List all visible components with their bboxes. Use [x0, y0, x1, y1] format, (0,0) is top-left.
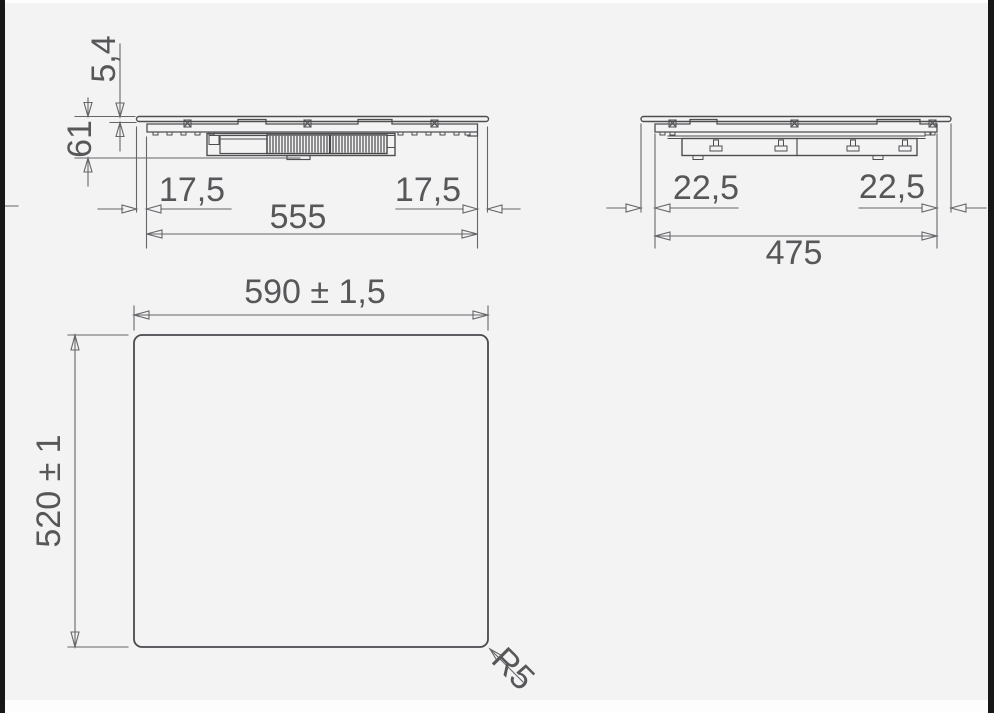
dim-label-cutout-depth: 520 ± 1 [32, 434, 66, 547]
technical-drawing-canvas [0, 0, 994, 713]
side-view-drawing [607, 117, 986, 249]
sheet-bottom-margin [5, 700, 988, 713]
dim-label-body-width: 555 [270, 200, 327, 234]
page-edge-left [0, 0, 5, 713]
dim-label-body-depth: 475 [766, 236, 823, 270]
front-glass-panel [137, 117, 489, 122]
dim-label-front-overhang-right: 17,5 [395, 173, 461, 207]
dim-label-cutout-width: 590 ± 1,5 [244, 275, 386, 309]
page-edge-right [988, 0, 994, 713]
dim-label-front-overhang-left: 17,5 [159, 173, 225, 207]
front-heatsink-fins [267, 135, 387, 154]
side-mounting-feet [710, 140, 911, 151]
side-chassis-boxes [668, 136, 925, 160]
cutout-rectangle [134, 335, 488, 647]
dim-label-installed-height: 61 [63, 120, 97, 158]
top-view-drawing [68, 306, 523, 682]
sheet-top-margin [5, 0, 988, 3]
drawing-sheet: 5,4 61 17,5 17,5 555 22,5 22,5 475 590 ±… [0, 0, 994, 713]
dim-label-side-overhang-left: 22,5 [673, 171, 739, 205]
front-chassis-box [207, 134, 395, 160]
dim-label-side-overhang-right: 22,5 [859, 170, 925, 204]
dim-label-glass-thickness: 5,4 [87, 35, 121, 82]
top-dimension-lines [68, 306, 523, 682]
